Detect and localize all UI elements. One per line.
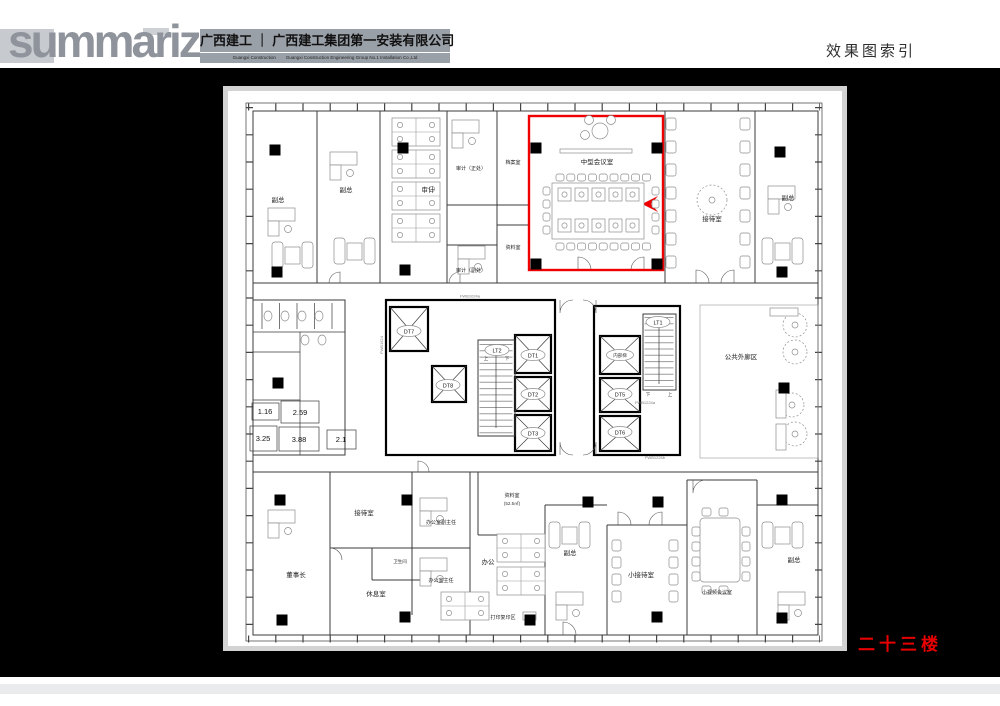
bottom-strip (0, 684, 1000, 694)
room-area-data-btm: (52.5㎡) (504, 500, 521, 506)
svg-text:下: 下 (505, 356, 510, 362)
svg-text:FWB1524: FWB1524 (379, 335, 384, 354)
svg-text:3.88: 3.88 (292, 435, 307, 444)
room-label-video-conf: 小视频会议室 (702, 589, 732, 596)
room-label-small-reception: 小接待室 (628, 570, 655, 579)
brand-logo: summarize (8, 18, 221, 64)
svg-text:1.16: 1.16 (258, 407, 273, 416)
room-label-archive: 档案室 (505, 159, 520, 166)
room-label-audit-open: 审计 (422, 185, 436, 194)
svg-text:上: 上 (668, 391, 673, 397)
room-label-reception-top: 接待室 (702, 214, 722, 223)
room-label-vp4: 副总 (564, 548, 578, 557)
room-label-conference: 中型会议室 (581, 157, 614, 166)
room-label-wc: 卫生间 (393, 558, 407, 565)
elevator-label-dt7: DT7 (404, 330, 414, 336)
elevator-label-dt3: DT3 (528, 432, 538, 438)
company-name-cn: 广西建工 ｜ 广西建工集团第一安装有限公司 (200, 29, 450, 53)
elevator-label-dt2: DT2 (528, 393, 538, 399)
room-label-data-btm: 资料室 (504, 492, 519, 499)
svg-text:FWB1224a: FWB1224a (635, 400, 656, 405)
room-label-office-director: 办公室主任 (428, 577, 453, 584)
stair-label-lt1: LT1 (653, 321, 662, 327)
room-label-reception-btm: 接待室 (354, 508, 374, 517)
company-band: 广西建工 ｜ 广西建工集团第一安装有限公司 Guangxi Constructi… (200, 29, 450, 63)
svg-text:2.59: 2.59 (293, 408, 308, 417)
room-label-vp2: 副总 (340, 185, 354, 194)
svg-text:2.1: 2.1 (336, 435, 346, 444)
room-label-print: 打印复印区 (490, 614, 515, 621)
company-name-en: Guangxi Construction Guangxi Constructio… (200, 53, 450, 63)
svg-text:FWB1024a: FWB1024a (460, 294, 481, 299)
slide-page: summarize 广西建工 ｜ 广西建工集团第一安装有限公司 Guangxi … (0, 0, 1000, 706)
room-label-office-deputy: 办公室副主任 (426, 519, 456, 526)
svg-text:下: 下 (646, 392, 651, 398)
floorplan-sheet: 1.16 2.59 3.25 3.88 2.1 DT7 DT8 DT1 DT2 … (223, 86, 847, 651)
floorplan-drawing: 1.16 2.59 3.25 3.88 2.1 DT7 DT8 DT1 DT2 … (228, 91, 842, 646)
area-number-boxes: 1.16 2.59 3.25 3.88 2.1 (250, 401, 356, 451)
room-label-audit-deputy: 审计（副处） (456, 267, 486, 274)
svg-text:3.25: 3.25 (256, 434, 271, 443)
room-label-corridor: 公共外廊区 (725, 352, 758, 361)
room-label-chairman: 董事长 (286, 570, 306, 579)
header: summarize 广西建工 ｜ 广西建工集团第一安装有限公司 Guangxi … (0, 0, 1000, 68)
stair-label-lt2: LT2 (492, 349, 501, 355)
room-label-vp1: 副总 (272, 195, 286, 204)
room-label-vp5: 副总 (788, 555, 802, 564)
room-label-lounge: 休息室 (366, 589, 386, 598)
elevator-label-dt8: DT8 (443, 384, 453, 390)
elevator-label-dt6: DT6 (615, 431, 625, 437)
stair-label-internal: 内部梯 (613, 352, 627, 359)
page-title: 效果图索引 (826, 40, 916, 61)
room-label-data-top: 资料室 (505, 244, 520, 251)
elevator-label-dt5: DT5 (615, 393, 625, 399)
room-label-open-office: 办公 (482, 557, 496, 566)
floor-label: 二十三楼 (858, 630, 942, 655)
room-label-audit-chief: 审计（正处） (456, 165, 486, 172)
svg-text:上: 上 (484, 355, 489, 361)
elevator-label-dt1: DT1 (528, 354, 538, 360)
svg-text:FWB1224b: FWB1224b (645, 455, 666, 460)
room-label-vp3: 副总 (782, 193, 796, 202)
